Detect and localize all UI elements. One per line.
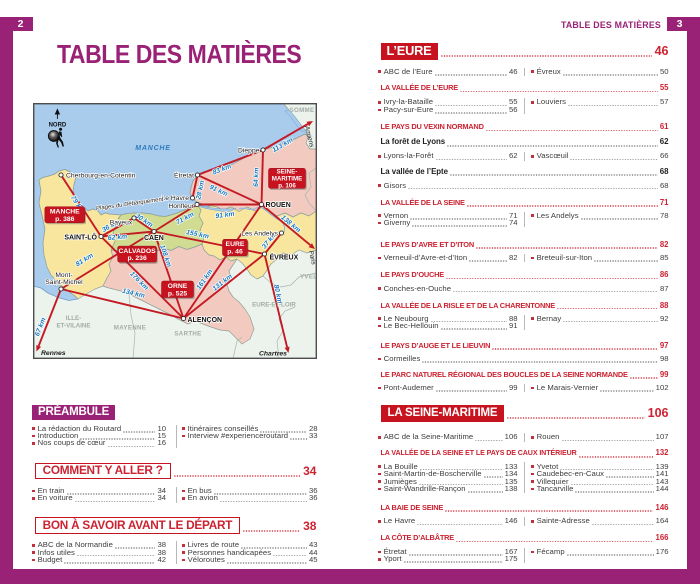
svg-text:ÉVREUX: ÉVREUX (270, 253, 299, 262)
svg-text:p. 236: p. 236 (127, 255, 146, 262)
svg-text:MANCHE: MANCHE (50, 208, 80, 215)
svg-text:MAYENNE: MAYENNE (114, 325, 146, 332)
svg-text:CAEN: CAEN (144, 235, 164, 242)
svg-text:Bayeux: Bayeux (110, 220, 133, 227)
svg-text:SARTHE: SARTHE (174, 331, 201, 338)
svg-text:Les Andelys: Les Andelys (241, 231, 278, 238)
svg-text:MANCHE: MANCHE (135, 145, 171, 152)
svg-text:Cherbourg-en-Cotentin: Cherbourg-en-Cotentin (66, 173, 136, 180)
svg-text:Honfleur: Honfleur (168, 203, 194, 210)
svg-text:Chartres: Chartres (259, 351, 287, 358)
svg-text:Dieppe: Dieppe (238, 148, 260, 155)
svg-text:ORNE: ORNE (168, 283, 188, 290)
svg-text:EURE: EURE (226, 241, 245, 248)
svg-text:Rennes: Rennes (41, 350, 66, 357)
svg-text:EURE-ET-LOIR: EURE-ET-LOIR (252, 302, 296, 309)
svg-text:ROUEN: ROUEN (266, 202, 291, 209)
svg-text:Étretat: Étretat (174, 171, 194, 180)
svg-text:SAINT-LÔ: SAINT-LÔ (64, 233, 97, 242)
svg-text:64 km: 64 km (253, 168, 261, 188)
svg-text:Mont-: Mont- (55, 272, 72, 279)
svg-text:ILLE-: ILLE- (66, 315, 81, 322)
svg-text:Le Havre: Le Havre (161, 195, 189, 202)
svg-text:SOMME: SOMME (290, 107, 315, 114)
svg-text:CALVADOS: CALVADOS (119, 248, 157, 255)
svg-text:p. 386: p. 386 (55, 216, 74, 223)
svg-text:Saint-Michel: Saint-Michel (45, 279, 83, 286)
svg-text:YVEL.: YVEL. (300, 274, 317, 281)
svg-text:p. 106: p. 106 (278, 182, 296, 189)
svg-text:NORD: NORD (49, 123, 67, 129)
svg-text:ET-VILAINE: ET-VILAINE (56, 323, 90, 330)
svg-text:ALENÇON: ALENÇON (188, 317, 223, 324)
svg-text:p. 525: p. 525 (168, 290, 187, 297)
svg-text:p. 46: p. 46 (227, 249, 243, 256)
